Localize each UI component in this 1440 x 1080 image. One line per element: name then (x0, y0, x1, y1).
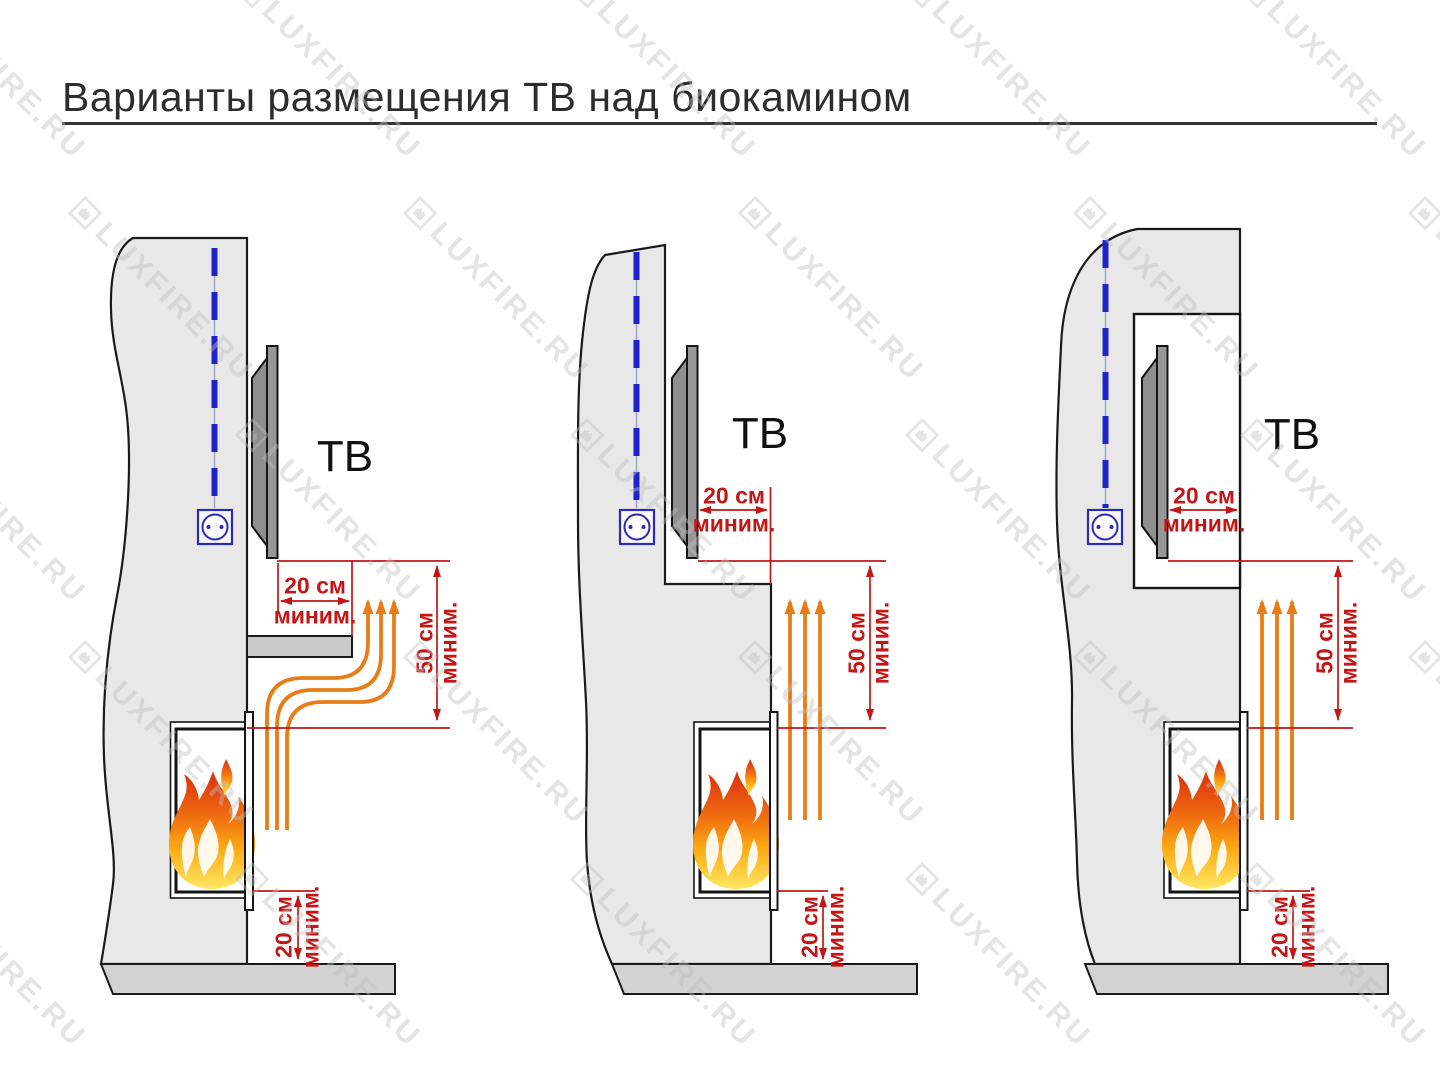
tv-side-view (252, 346, 278, 558)
diagram-2-shapes (578, 245, 917, 994)
power-outlet-icon (620, 510, 654, 544)
power-outlet-icon (1088, 510, 1122, 544)
floor (612, 964, 917, 994)
infographic-page: Варианты размещения ТВ над биокамином (0, 0, 1440, 1080)
tv-side-view (672, 346, 698, 558)
heat-arrows (790, 602, 820, 820)
power-outlet-icon (198, 510, 232, 544)
shelf (247, 636, 352, 657)
diagram-canvas (0, 0, 1440, 1080)
floor (101, 964, 395, 994)
diagram-1-shapes (101, 238, 450, 994)
heat-arrows (1262, 602, 1292, 820)
diagram-3-shapes (1056, 229, 1388, 994)
fireplace (693, 712, 779, 910)
floor (1085, 964, 1388, 994)
fireplace (1162, 712, 1248, 910)
tv-side-view (1142, 346, 1168, 558)
fireplace (169, 712, 255, 910)
